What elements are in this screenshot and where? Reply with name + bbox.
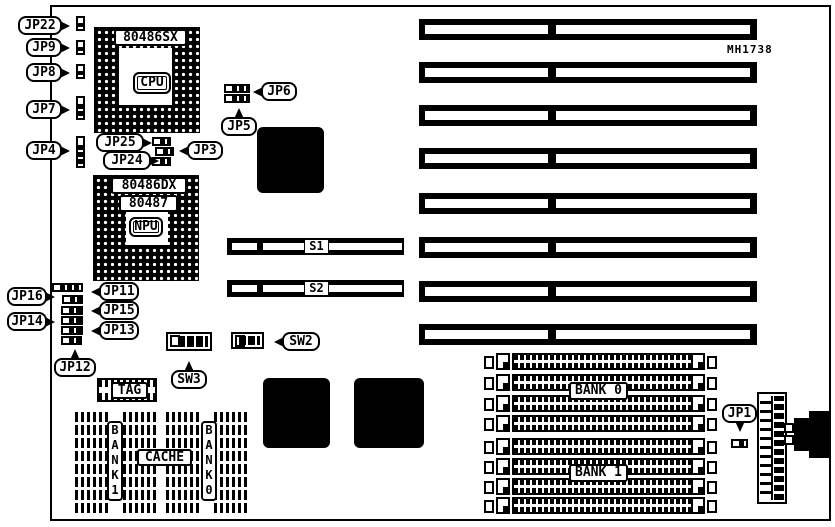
chipset-qfp-3 xyxy=(354,378,424,448)
sw2-dip-switch xyxy=(231,332,264,349)
simm-hole xyxy=(707,398,717,411)
jp7-jumper xyxy=(76,96,85,120)
isa-slot-4 xyxy=(419,148,757,169)
isa-slot-segment xyxy=(425,25,548,34)
jp9-label: JP9 xyxy=(26,38,62,57)
simm-latch xyxy=(496,415,510,432)
jp9-jumper xyxy=(76,40,85,55)
sw2-label: SW2 xyxy=(282,332,320,351)
isa-slot-segment xyxy=(425,243,548,252)
simm-latch xyxy=(691,458,705,475)
npu-core-label: NPU xyxy=(129,217,163,237)
s2-connector: S2 xyxy=(227,280,404,297)
keyboard-connector-pin xyxy=(784,435,794,445)
isa-slot-5 xyxy=(419,193,757,214)
s1-segment xyxy=(263,243,305,250)
cpu-part-label: 80486SX xyxy=(114,29,187,46)
simm-hole xyxy=(484,461,494,474)
s1-connector: S1 xyxy=(227,238,404,255)
memory-bank0-label: BANK 0 xyxy=(569,382,628,400)
s1-label: S1 xyxy=(304,239,329,254)
cpu-core-label: CPU xyxy=(133,72,171,94)
board-model-text: MH1738 xyxy=(727,43,773,56)
simm-latch xyxy=(691,415,705,432)
jp7-label: JP7 xyxy=(26,100,62,119)
isa-slot-segment xyxy=(425,154,548,163)
simm-socket xyxy=(484,438,717,455)
s2-segment xyxy=(328,285,402,292)
simm-latch xyxy=(496,395,510,412)
jp16-jumper xyxy=(62,295,83,304)
cache-bank0-vertical-label: BANK0 xyxy=(201,421,217,501)
s1-segment xyxy=(328,243,402,250)
jp14-label: JP14 xyxy=(7,312,47,331)
jp5-label: JP5 xyxy=(221,117,257,136)
sw3-label: SW3 xyxy=(171,370,207,389)
jp6-jumper-a xyxy=(224,84,250,93)
simm-socket xyxy=(484,497,717,514)
isa-slot-2 xyxy=(419,62,757,83)
isa-slot-segment xyxy=(556,199,750,208)
isa-slot-segment xyxy=(425,68,548,77)
simm-contacts xyxy=(512,438,693,455)
simm-hole xyxy=(484,356,494,369)
keyboard-connector xyxy=(809,411,831,458)
jp3-label: JP3 xyxy=(187,141,223,160)
jp4-jumper xyxy=(76,136,85,168)
simm-socket xyxy=(484,415,717,432)
isa-slot-segment xyxy=(425,199,548,208)
simm-contacts xyxy=(512,353,693,370)
s1-segment xyxy=(232,243,257,250)
simm-hole xyxy=(707,461,717,474)
simm-latch xyxy=(496,478,510,495)
isa-slot-segment xyxy=(425,287,548,296)
simm-latch xyxy=(496,497,510,514)
simm-hole xyxy=(484,377,494,390)
isa-slot-segment xyxy=(425,330,548,339)
npu-part2-label: 80487 xyxy=(119,195,178,212)
simm-hole xyxy=(707,418,717,431)
isa-slot-3 xyxy=(419,105,757,126)
simm-hole xyxy=(707,356,717,369)
jp13-jumper xyxy=(61,326,83,335)
power-connector-pins-left xyxy=(760,396,773,500)
simm-latch xyxy=(691,374,705,391)
isa-slot-segment xyxy=(556,25,750,34)
tag-label: TAG xyxy=(111,382,148,399)
keyboard-connector-body xyxy=(794,418,811,451)
sw3-positions xyxy=(178,336,208,347)
simm-latch xyxy=(496,458,510,475)
jp8-label: JP8 xyxy=(26,63,62,82)
isa-slot-6 xyxy=(419,237,757,258)
jp22-jumper xyxy=(76,16,85,31)
isa-slot-segment xyxy=(556,287,750,296)
chipset-qfp-2 xyxy=(263,378,330,448)
simm-latch xyxy=(691,438,705,455)
simm-latch xyxy=(496,374,510,391)
jp1-jumper xyxy=(731,439,748,448)
isa-slot-1 xyxy=(419,19,757,40)
jp25-jumper xyxy=(152,137,171,146)
simm-contacts xyxy=(512,497,693,514)
simm-socket xyxy=(484,353,717,370)
motherboard-diagram: MH1738 80486SX CPU 80486DX 80487 NPU JP2… xyxy=(0,0,835,527)
simm-latch xyxy=(691,395,705,412)
simm-hole xyxy=(707,377,717,390)
simm-hole xyxy=(484,500,494,513)
jp12-jumper xyxy=(61,336,82,345)
jp15-jumper xyxy=(61,306,83,315)
jp13-label: JP13 xyxy=(99,321,139,340)
memory-bank1-label: BANK 1 xyxy=(569,464,628,482)
sw2-positions xyxy=(239,336,260,345)
s2-label: S2 xyxy=(304,281,329,296)
simm-latch xyxy=(691,478,705,495)
jp14-jumper xyxy=(61,316,83,325)
jp1-label: JP1 xyxy=(722,404,757,423)
simm-latch xyxy=(496,438,510,455)
jp24-label: JP24 xyxy=(103,151,151,170)
simm-hole xyxy=(484,398,494,411)
jp6-jumper-b xyxy=(224,94,250,103)
power-connector xyxy=(757,392,787,504)
npu-part-label: 80486DX xyxy=(111,177,187,194)
jp15-label: JP15 xyxy=(99,301,139,320)
jp11-label: JP11 xyxy=(99,282,139,301)
isa-slot-segment xyxy=(556,154,750,163)
jp11-jumper xyxy=(52,283,83,292)
power-connector-pins-right xyxy=(774,396,784,500)
isa-slot-8 xyxy=(419,324,757,345)
jp4-label: JP4 xyxy=(26,141,62,160)
simm-hole xyxy=(484,481,494,494)
isa-slot-segment xyxy=(425,111,548,120)
isa-slot-segment xyxy=(556,68,750,77)
simm-hole xyxy=(484,441,494,454)
cache-bank1-vertical-label: BANK1 xyxy=(107,421,123,501)
s2-segment xyxy=(232,285,257,292)
isa-slot-segment xyxy=(556,111,750,120)
jp12-label: JP12 xyxy=(54,358,96,377)
isa-slot-segment xyxy=(556,243,750,252)
jp6-label: JP6 xyxy=(261,82,297,101)
isa-slot-7 xyxy=(419,281,757,302)
simm-latch xyxy=(691,497,705,514)
simm-hole xyxy=(707,500,717,513)
simm-hole xyxy=(707,441,717,454)
simm-latch xyxy=(496,353,510,370)
cache-label: CACHE xyxy=(137,449,192,466)
simm-hole xyxy=(707,481,717,494)
jp8-jumper xyxy=(76,64,85,79)
jp22-label: JP22 xyxy=(18,16,62,35)
simm-hole xyxy=(484,418,494,431)
s2-segment xyxy=(263,285,305,292)
keyboard-connector-pin xyxy=(784,423,794,433)
chipset-qfp-1 xyxy=(257,127,324,193)
simm-contacts xyxy=(512,415,693,432)
jp25-label: JP25 xyxy=(96,133,144,152)
sw3-dip-switch xyxy=(166,332,212,351)
simm-latch xyxy=(691,353,705,370)
jp16-label: JP16 xyxy=(7,287,47,306)
isa-slot-segment xyxy=(556,330,750,339)
